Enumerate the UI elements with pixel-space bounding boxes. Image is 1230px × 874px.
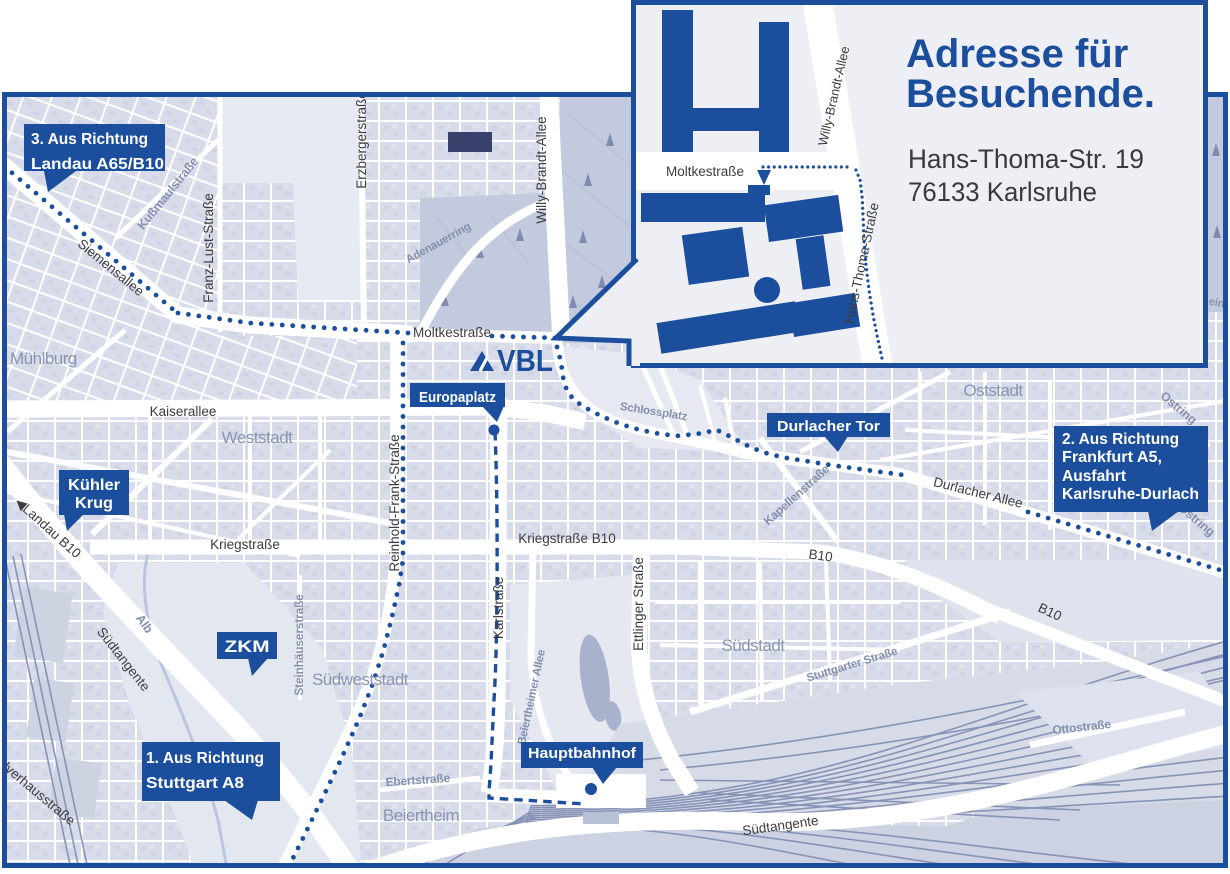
- svg-text:Europaplatz: Europaplatz: [419, 389, 496, 406]
- svg-text:Steinhäuserstraße: Steinhäuserstraße: [292, 594, 306, 696]
- svg-text:Willy-Brandt-Allee: Willy-Brandt-Allee: [534, 116, 549, 223]
- svg-text:Karlstraße: Karlstraße: [491, 577, 506, 639]
- svg-text:VBL: VBL: [497, 343, 553, 378]
- svg-text:Krug: Krug: [75, 495, 113, 512]
- svg-text:Beiertheim: Beiertheim: [383, 806, 460, 825]
- svg-text:Landau A65/B10: Landau A65/B10: [31, 156, 164, 173]
- svg-text:Kriegstraße: Kriegstraße: [210, 537, 280, 552]
- svg-text:Moltkestraße: Moltkestraße: [666, 164, 744, 179]
- svg-text:3. Aus Richtung: 3. Aus Richtung: [31, 131, 148, 148]
- svg-text:Reinhold-Frank-Straße: Reinhold-Frank-Straße: [387, 434, 402, 571]
- svg-text:2. Aus Richtung: 2. Aus Richtung: [1062, 431, 1179, 448]
- svg-text:ZKM: ZKM: [225, 637, 270, 656]
- svg-text:Franz-Lust-Straße: Franz-Lust-Straße: [201, 193, 216, 303]
- svg-text:Oststadt: Oststadt: [963, 381, 1023, 400]
- svg-text:Mühlburg: Mühlburg: [10, 349, 77, 368]
- svg-text:Kriegstraße B10: Kriegstraße B10: [518, 531, 616, 546]
- svg-text:Weststadt: Weststadt: [222, 428, 294, 447]
- svg-text:Karlsruhe-Durlach: Karlsruhe-Durlach: [1062, 486, 1199, 503]
- svg-text:Stuttgart A8: Stuttgart A8: [146, 775, 244, 792]
- svg-text:Adresse für: Adresse für: [906, 32, 1128, 76]
- svg-text:Frankfurt A5,: Frankfurt A5,: [1062, 449, 1162, 466]
- svg-text:Durlacher Tor: Durlacher Tor: [777, 418, 880, 435]
- svg-text:Ausfahrt: Ausfahrt: [1062, 468, 1127, 485]
- svg-text:Erzbergerstraße: Erzbergerstraße: [354, 91, 369, 189]
- svg-text:Moltkestraße: Moltkestraße: [413, 325, 491, 340]
- svg-text:Kaiserallee: Kaiserallee: [150, 404, 217, 419]
- svg-text:Ettlinger Straße: Ettlinger Straße: [631, 557, 646, 651]
- svg-text:Südstadt: Südstadt: [721, 636, 785, 655]
- svg-text:76133 Karlsruhe: 76133 Karlsruhe: [908, 177, 1097, 207]
- svg-text:Hans-Thoma-Str. 19: Hans-Thoma-Str. 19: [908, 144, 1144, 174]
- svg-text:Besuchende.: Besuchende.: [906, 72, 1155, 116]
- svg-text:Hauptbahnhof: Hauptbahnhof: [528, 745, 637, 762]
- svg-text:Kühler: Kühler: [68, 477, 120, 494]
- svg-text:1. Aus Richtung: 1. Aus Richtung: [146, 750, 264, 767]
- svg-text:Südweststadt: Südweststadt: [312, 670, 409, 689]
